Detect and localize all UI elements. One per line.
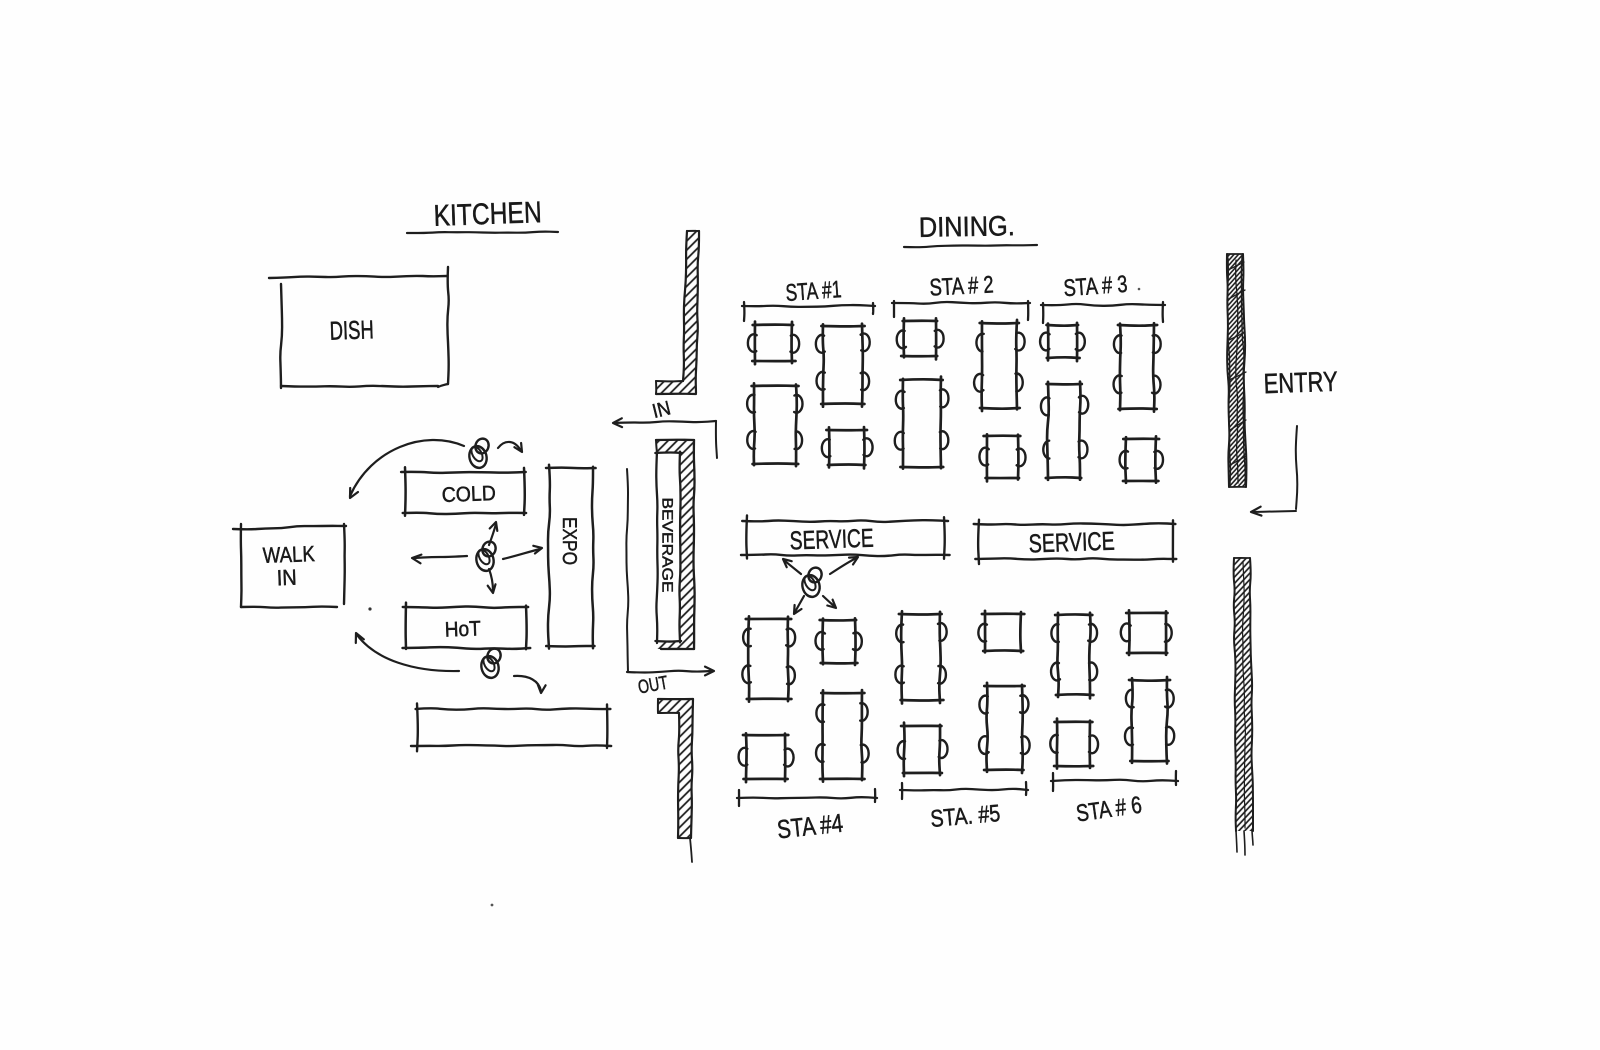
- svg-text:BEVERAGE: BEVERAGE: [659, 498, 676, 593]
- svg-text:HoT: HoT: [444, 617, 481, 641]
- svg-text:ENTRY: ENTRY: [1263, 366, 1338, 400]
- svg-text:DISH: DISH: [329, 314, 374, 346]
- svg-text:SERVICE: SERVICE: [1028, 526, 1115, 559]
- svg-text:STA #1: STA #1: [785, 276, 843, 307]
- svg-text:DINING.: DINING.: [919, 210, 1016, 243]
- svg-text:COLD: COLD: [441, 482, 496, 507]
- svg-text:EXPO: EXPO: [558, 517, 580, 565]
- svg-text:STA # 2: STA # 2: [929, 271, 994, 301]
- svg-text:KITCHEN: KITCHEN: [433, 196, 542, 233]
- svg-text:IN: IN: [276, 565, 297, 591]
- svg-text:WALK: WALK: [262, 541, 315, 568]
- svg-text:STA # 3: STA # 3: [1063, 271, 1129, 302]
- svg-text:SERVICE: SERVICE: [789, 523, 874, 556]
